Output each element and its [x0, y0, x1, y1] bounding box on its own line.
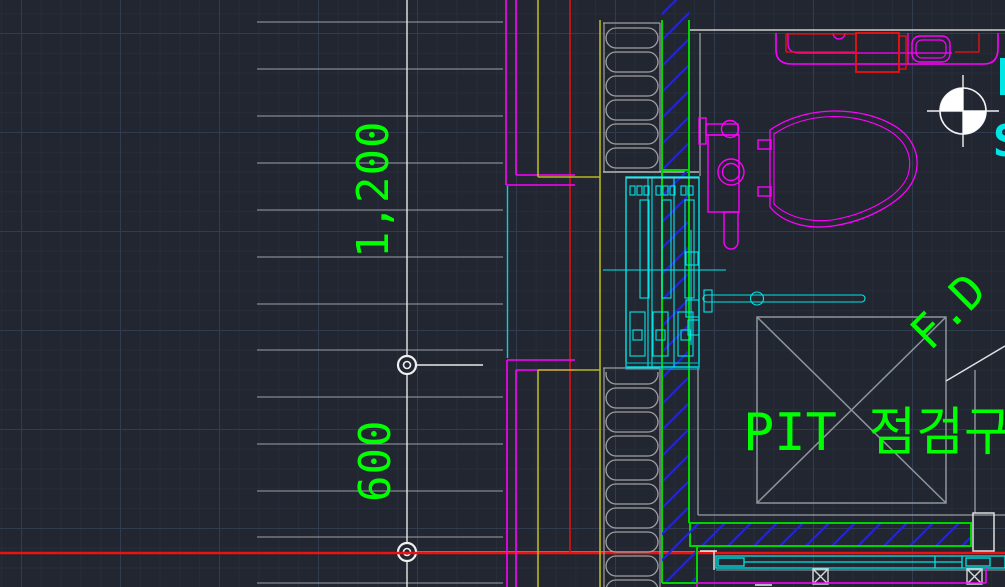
edge-label-s: S [993, 116, 1005, 167]
pit-label: PIT 점검구 [743, 403, 1005, 463]
datum-point-icon [927, 75, 999, 147]
vanity-counter-plan [776, 33, 998, 72]
edge-label-fragments [1000, 58, 1005, 95]
bottom-magenta-lines [697, 568, 986, 587]
window-handle [703, 290, 865, 312]
door-jamb-column [973, 513, 994, 551]
red-reference-lines [0, 0, 1005, 553]
wall-finish-lines [506, 0, 600, 587]
dimension-marker-icon [398, 356, 416, 374]
duct-strip-cyan [716, 556, 1005, 568]
hatched-wall-band [662, 0, 971, 583]
window-frame-section [603, 177, 865, 369]
toilet-plan [699, 111, 917, 249]
fd-label: F.D [900, 263, 997, 360]
cad-canvas[interactable]: 1,200 600 PIT 점검구 F.D S [0, 0, 1005, 587]
drawing-svg: 1,200 600 PIT 점검구 F.D S [0, 0, 1005, 587]
inspection-box-crossed-icon [813, 569, 982, 584]
dim-text-600: 600 [350, 420, 401, 502]
dim-text-1200: 1,200 [348, 121, 399, 258]
